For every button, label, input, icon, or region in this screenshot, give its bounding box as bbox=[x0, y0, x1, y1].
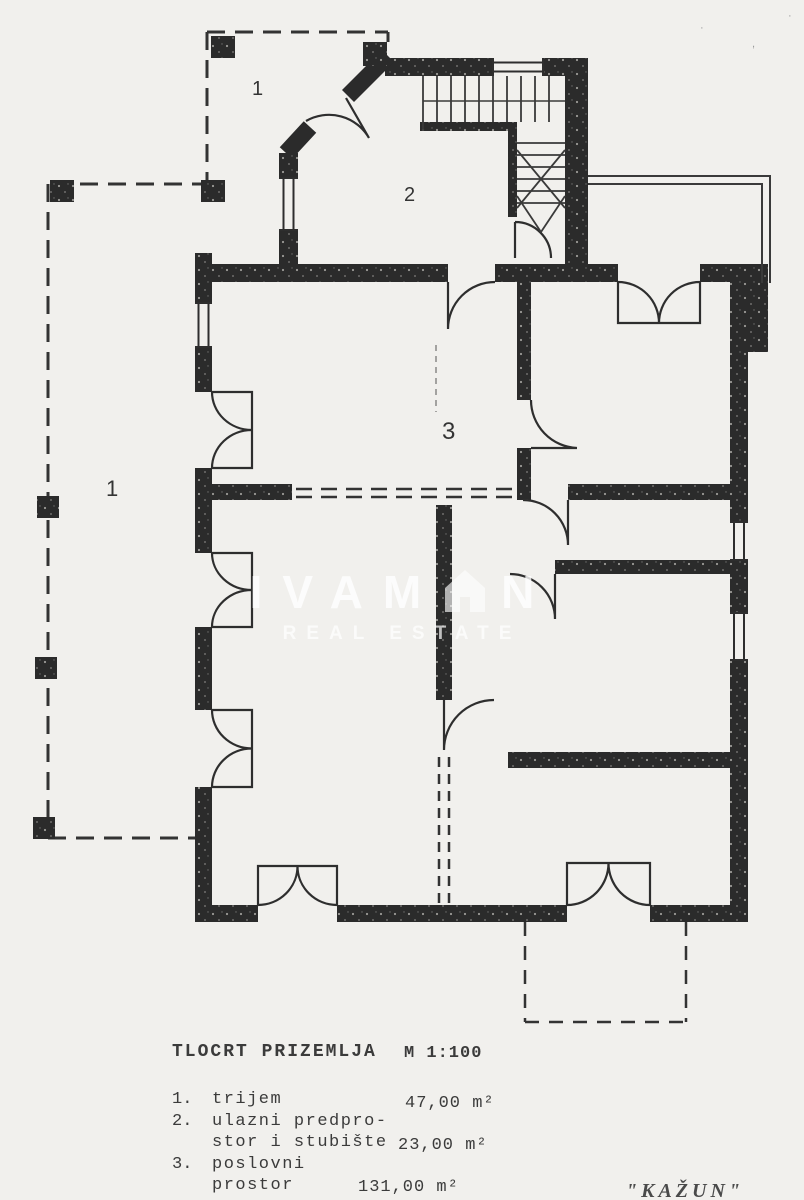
legend-item-number: 3. bbox=[172, 1155, 192, 1174]
scan-artifact: , bbox=[752, 38, 755, 50]
legend-item-area: 23,00 m² bbox=[398, 1136, 488, 1155]
legend-item-name-continued: stor i stubište bbox=[212, 1133, 388, 1152]
legend-item-area: 47,00 m² bbox=[405, 1094, 495, 1113]
legend-item-number: 2. bbox=[172, 1112, 192, 1131]
scanned-floor-plan-page: 1 2 1 3 IVAM N REAL ESTATE TLOCRT PRIZEM… bbox=[0, 0, 804, 1200]
page-title: TLOCRT PRIZEMLJA bbox=[172, 1042, 377, 1062]
legend-item-area: 131,00 m² bbox=[358, 1178, 459, 1197]
scan-artifact: · bbox=[700, 22, 704, 34]
legend-item-name: trijem bbox=[212, 1090, 282, 1109]
legend-item-name-continued: prostor bbox=[212, 1176, 294, 1195]
legend-item-name: ulazni predpro- bbox=[212, 1112, 388, 1131]
legend-item-number: 1. bbox=[172, 1090, 192, 1109]
plan-scale: M 1:100 bbox=[404, 1044, 482, 1063]
property-name: "KAŽUN" bbox=[626, 1180, 744, 1200]
legend-item-name: poslovni bbox=[212, 1155, 306, 1174]
plan-legend: TLOCRT PRIZEMLJA M 1:100 1. trijem 47,00… bbox=[0, 0, 804, 1200]
scan-artifact: · bbox=[788, 10, 792, 22]
